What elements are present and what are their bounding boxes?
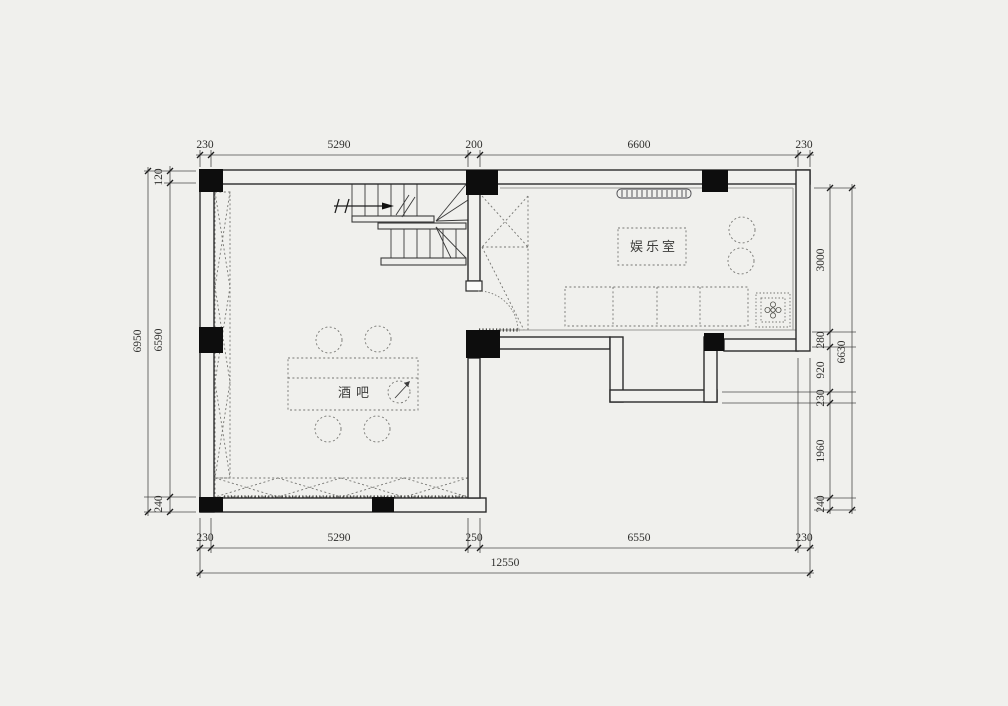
bar-stool [316,327,342,353]
dim-top-5290: 5290 [328,139,351,151]
dim-left-6590: 6590 [153,328,165,351]
dimension-left: 120 6590 240 6950 [132,166,196,516]
dim-top-230b: 230 [795,139,813,151]
column [466,170,498,195]
dim-top-230a: 230 [196,139,214,151]
bar-counter [288,358,418,410]
curtain-element [617,189,691,198]
dim-right-3000: 3000 [815,248,827,271]
south-wall-left [498,337,610,349]
floor-plan-screenshot: 酒吧 娱乐室 230 5290 200 6600 230 [0,0,1008,706]
dim-right-280: 280 [815,331,827,349]
dim-bottom-230b: 230 [795,532,813,544]
south-wall-right [724,339,798,351]
dim-bottom-5290: 5290 [328,532,351,544]
bottom-wall-glazing-strip [215,478,468,497]
column [372,497,394,512]
niche-bottom-wall [610,390,717,402]
column [466,330,500,358]
dim-left-total: 6950 [132,329,144,352]
dimension-top: 230 5290 200 6600 230 [196,139,814,167]
round-table [729,217,755,243]
dim-bottom-total: 12550 [491,557,520,569]
dimension-bottom: 230 5290 250 6550 230 12550 [196,358,814,578]
corridor-projection-lines [482,196,528,332]
bottom-left-wall [200,498,486,512]
staircase [352,182,468,265]
column [702,170,728,192]
dim-top-200: 200 [465,139,483,151]
rotation-arrow-circle-icon [388,381,410,403]
column [199,169,223,192]
dim-right-total: 6630 [836,340,848,363]
interior-face-lines [498,188,796,330]
dim-bottom-6550: 6550 [628,532,651,544]
right-wall [796,170,810,351]
middle-wall-lower [468,358,480,498]
sofa-row [565,287,748,326]
round-table [728,248,754,274]
dim-right-240: 240 [815,495,827,513]
dim-right-1960: 1960 [815,439,827,462]
middle-wall-upper [468,184,480,281]
room-label-bar: 酒吧 [338,385,374,400]
plant-symbol [756,293,790,327]
column [199,327,223,353]
dim-left-240: 240 [153,495,165,513]
bar-stool [365,326,391,352]
dim-right-230: 230 [815,389,827,407]
dim-bottom-230a: 230 [196,532,214,544]
dim-right-920: 920 [815,361,827,379]
column [704,333,724,351]
room-label-entertainment: 娱乐室 [630,239,678,254]
bar-stool [315,416,341,442]
dim-left-120: 120 [153,168,165,186]
stair-direction-arrow-icon [334,195,415,217]
bar-stool [364,416,390,442]
floor-plan-canvas: 酒吧 娱乐室 230 5290 200 6600 230 [0,0,1008,706]
dim-top-6600: 6600 [628,139,651,151]
dim-bottom-250: 250 [465,532,483,544]
column [199,497,223,512]
